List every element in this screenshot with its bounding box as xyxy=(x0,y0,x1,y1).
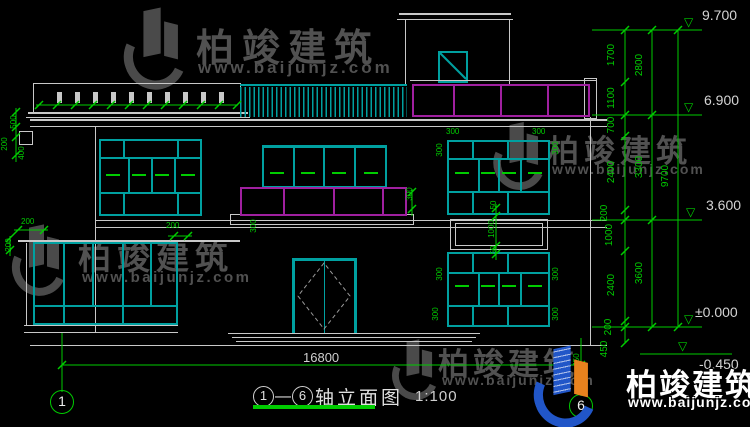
elevation-drawing-canvas: 柏竣建筑 www.baijunjz.com 柏竣建筑 www.baijunjz.… xyxy=(0,0,750,427)
total-width-label: 16800 xyxy=(303,350,339,365)
level-triangle-icon: ▽ xyxy=(678,340,687,352)
dim-label: 9700 xyxy=(661,156,671,196)
title-dash: — xyxy=(275,388,291,406)
axis-bubble-1: 1 xyxy=(50,390,74,414)
level-label: 9.700 xyxy=(702,7,737,23)
dim-label: 1700 xyxy=(607,35,617,75)
dim-label: 200 xyxy=(166,222,179,230)
dim-label: 1000 xyxy=(605,215,615,255)
dim-label: 300 xyxy=(552,294,560,334)
level-label: ±0.000 xyxy=(695,304,738,320)
dim-label: 300 xyxy=(532,128,545,136)
dim-label: 300 xyxy=(250,206,258,246)
dimension-ticks xyxy=(6,26,682,369)
logo-building-icon xyxy=(574,359,588,397)
dim-label: 2400 xyxy=(607,265,617,305)
level-label: 3.600 xyxy=(706,197,741,213)
title-scale: 1:100 xyxy=(415,388,458,405)
dim-label: 300 xyxy=(432,294,440,334)
level-triangle-icon: ▽ xyxy=(684,16,693,28)
title-axis-circle-to: 6 xyxy=(292,386,313,407)
dim-label: 300 xyxy=(406,174,414,214)
dim-label: 200 xyxy=(1,124,9,164)
dim-label: 450 xyxy=(600,329,610,369)
title-axis-circle-from: 1 xyxy=(253,386,274,407)
dim-label: 300 xyxy=(446,128,459,136)
dim-label: 300 xyxy=(436,130,444,170)
level-triangle-icon: ▽ xyxy=(684,101,693,113)
logo-building-icon xyxy=(553,346,570,396)
dim-label: 400 xyxy=(18,133,26,173)
dim-label: 300 xyxy=(436,254,444,294)
dim-label: 3600 xyxy=(635,253,645,293)
dim-label: 200 xyxy=(5,225,13,265)
watermark-url: www.baijunjz.com xyxy=(628,394,750,410)
dim-label: 500 xyxy=(10,102,18,142)
dim-label: 700 xyxy=(607,105,617,145)
dim-label: 200 xyxy=(21,218,34,226)
dim-label: 300 xyxy=(552,254,560,294)
dim-label: 50 xyxy=(490,230,498,270)
dim-label: 2400 xyxy=(607,152,617,192)
door-swing-diamond xyxy=(298,263,350,329)
dim-label: 3300 xyxy=(635,147,645,187)
level-label: 6.900 xyxy=(704,92,739,108)
brand-logo-color-icon xyxy=(534,347,597,418)
level-triangle-icon: ▽ xyxy=(686,206,695,218)
dim-label: 2800 xyxy=(635,45,645,85)
dim-label: 300 xyxy=(552,128,560,168)
bulkhead-window-diagonal xyxy=(440,53,466,79)
title-underline xyxy=(253,405,375,409)
level-triangle-icon: ▽ xyxy=(684,313,693,325)
